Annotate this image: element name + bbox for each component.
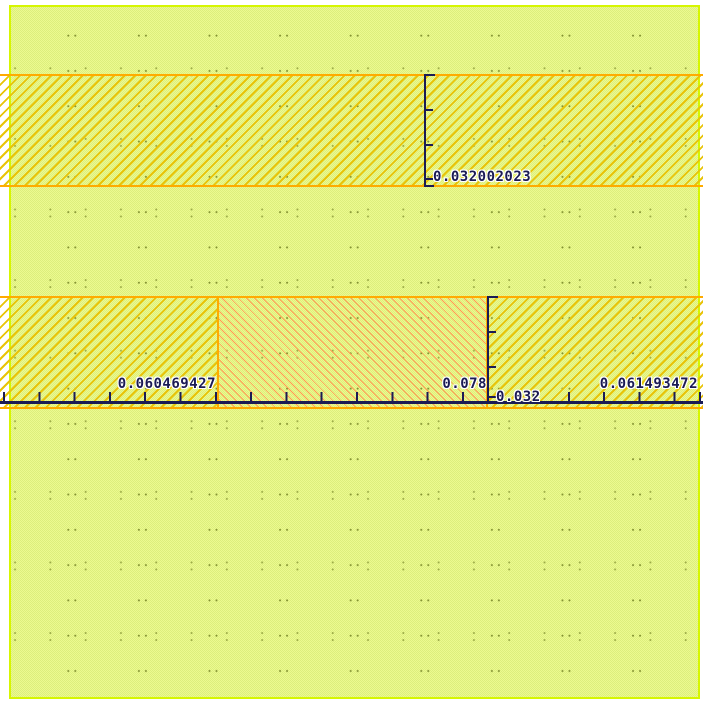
ruler-tick [426,109,433,111]
ruler-tick [426,144,433,146]
ruler-tick [489,331,496,333]
hatched-band-top[interactable] [0,74,703,187]
ruler-measurement-label: 0.032002023 [433,170,531,184]
ruler-measurement-label: 0.032 [496,390,541,404]
ruler-tick [489,296,498,298]
horizontal-ruler-ticks [3,392,701,401]
segment-width-label: 0.060469427 [118,377,216,391]
horizontal-ruler-line [0,401,703,404]
segment-width-label: 0.078 [442,377,487,391]
ruler-tick [426,178,433,180]
ruler-tick [489,366,496,368]
ruler-tick [426,185,434,187]
ruler-tick [426,74,435,76]
ruler-tick [699,392,701,401]
vertical-ruler-line [487,296,489,403]
vertical-ruler-line [424,74,426,187]
segment-width-label: 0.061493472 [600,377,698,391]
layout-canvas[interactable]: 0.032002023 0.032 0.060469427 0.078 0.06… [0,0,703,706]
